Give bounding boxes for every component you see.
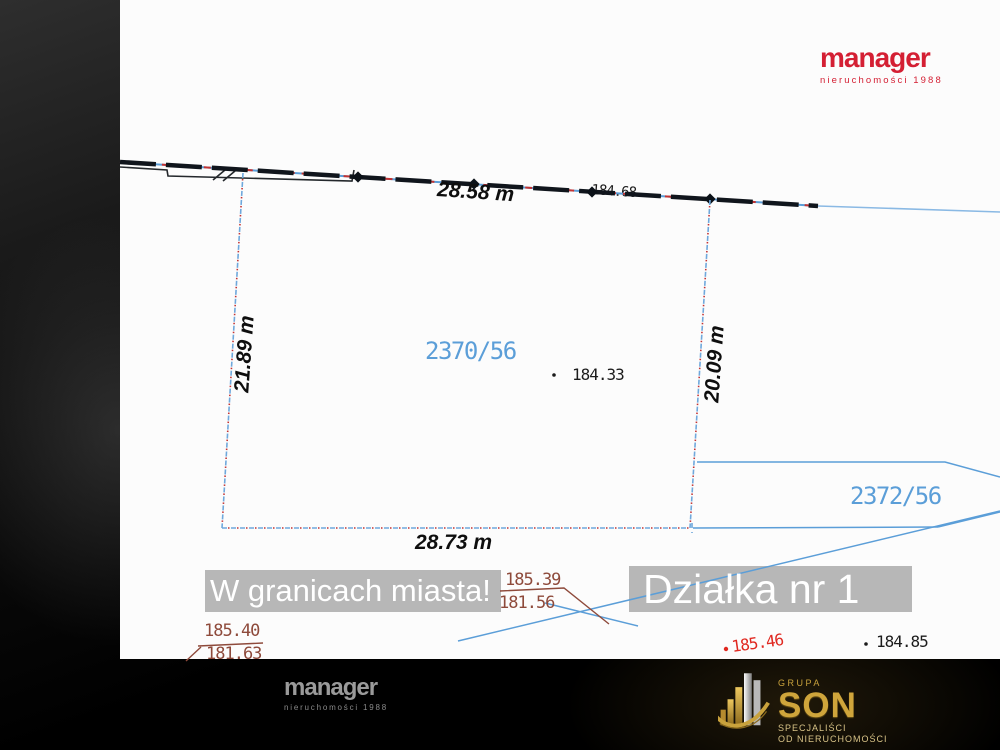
- banner-plot-text: Działka nr 1: [643, 566, 859, 612]
- dimension-south: 28.73 m: [415, 531, 492, 555]
- manager-tagline: nieruchomości 1988: [284, 703, 388, 712]
- elevation-fraction-mid-lower: 181.56: [499, 595, 554, 612]
- elevation-right-black: 184.85: [876, 632, 928, 651]
- elevation-fraction-mid-upper: 185.39: [505, 572, 560, 589]
- elevation-center: 184.33: [572, 365, 624, 384]
- parcel-number-main: 2370/56: [425, 337, 516, 365]
- manager-logo-top: manager nieruchomości 1988: [820, 44, 943, 86]
- boundary-elevation-label: 184.68: [591, 182, 637, 201]
- manager-wordmark: manager: [820, 44, 943, 72]
- son-tagline-1: SPECJALIŚCI: [778, 723, 888, 734]
- elevation-fraction-left-lower: 181.63: [206, 646, 261, 663]
- elevation-fraction-left-upper: 185.40: [204, 623, 259, 640]
- manager-tagline: nieruchomości 1988: [820, 75, 943, 86]
- son-buildings-icon: [718, 664, 770, 738]
- son-logo: GRUPA SON SPECJALIŚCI OD NIERUCHOMOŚCI: [718, 664, 888, 746]
- banner-city-text: W granicach miasta!: [210, 571, 491, 611]
- listing-image-frame: 184.68: [0, 0, 1000, 750]
- son-tagline-2: OD NIERUCHOMOŚCI: [778, 734, 888, 745]
- parcel-number-neighbor: 2372/56: [850, 482, 941, 510]
- son-wordmark: SON: [778, 688, 888, 723]
- manager-wordmark: manager: [284, 676, 388, 700]
- manager-logo-bottom: manager nieruchomości 1988: [284, 676, 388, 712]
